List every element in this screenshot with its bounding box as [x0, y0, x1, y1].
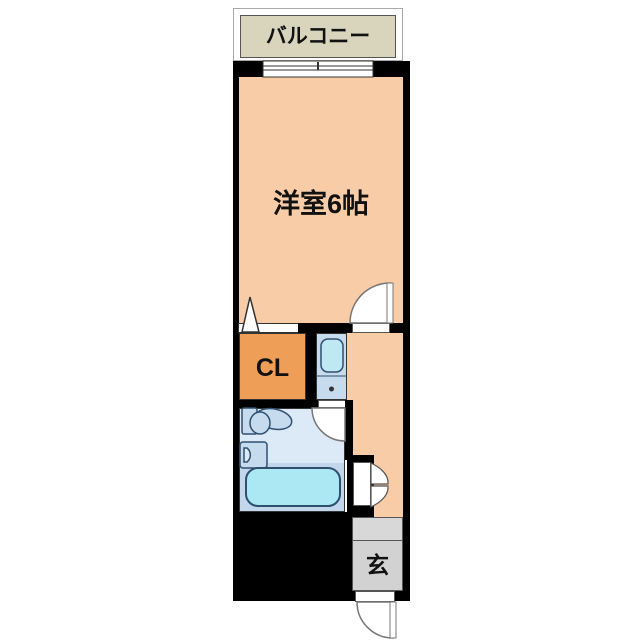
entrance-door-icon: [357, 602, 396, 638]
closet-label: CL: [239, 356, 306, 381]
closet-folding-door-icon: [242, 297, 259, 332]
main-room-label: 洋室6帖: [239, 191, 403, 218]
fixtures-overlay: [0, 0, 640, 640]
bathroom-door-icon: [312, 408, 345, 441]
washbasin-icon: [240, 442, 267, 468]
toilet-icon: [242, 405, 294, 434]
balcony-label: バルコニー: [233, 26, 403, 47]
floorplan-canvas: バルコニー 洋室6帖 CL 玄: [0, 0, 640, 640]
room-door-icon: [350, 283, 393, 323]
entrance-label: 玄: [352, 554, 403, 577]
storage-folding-door-icon: [371, 463, 388, 507]
sliding-window-icon: [263, 61, 373, 77]
kitchen-sink-icon: [316, 339, 347, 392]
bathtub-icon: [246, 468, 340, 506]
